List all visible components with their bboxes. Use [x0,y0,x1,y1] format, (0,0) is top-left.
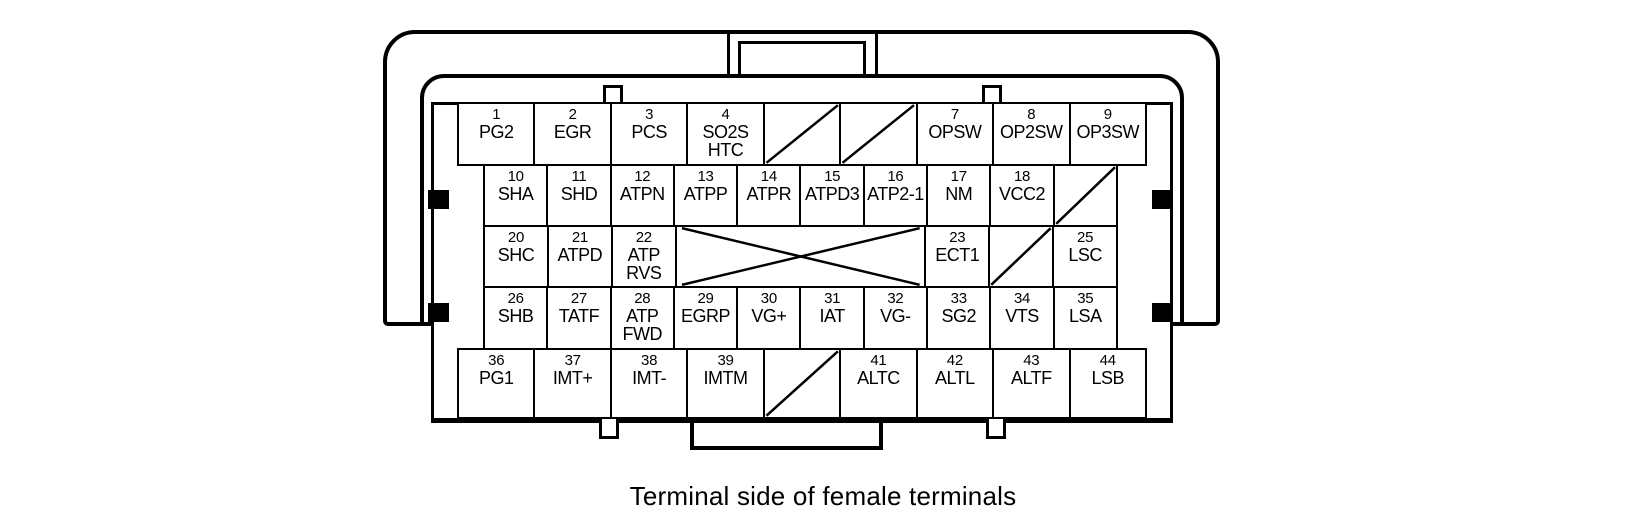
terminal-label-line2: HTC [708,141,744,159]
terminal-number: 39 [717,353,733,369]
terminal-cell-21: 21 ATPD [547,225,613,288]
terminal-label: SHB [498,307,534,325]
terminal-number: 17 [951,169,967,185]
terminal-number: 27 [571,291,587,307]
terminal-number: 9 [1104,107,1112,123]
terminal-number: 15 [824,169,840,185]
terminal-label: LSC [1068,246,1102,264]
diagram-caption: Terminal side of female terminals [593,481,1053,511]
terminal-cell-25: 25 LSC [1052,225,1118,288]
terminal-cell-7: 7 OPSW [916,102,994,166]
terminal-cell-4: 4 SO2S HTC [686,102,764,166]
unused-terminal-cell-24 [988,225,1054,288]
terminal-number: 3 [645,107,653,123]
terminal-number: 14 [761,169,777,185]
terminal-cell-18: 18 VCC2 [989,164,1054,227]
terminal-cell-13: 13 ATPP [673,164,738,227]
terminal-number: 33 [951,291,967,307]
terminal-label: SHC [498,246,535,264]
terminal-cell-41: 41 ALTC [839,348,917,419]
terminal-cell-38: 38 IMT- [610,348,688,419]
unused-terminal-cell-5 [763,102,841,166]
terminal-label: LSB [1091,369,1124,387]
terminal-number: 38 [641,353,657,369]
terminal-label: TATF [559,307,599,325]
terminal-label: VG+ [751,307,786,325]
terminal-cell-37: 37 IMT+ [533,348,611,419]
diagonal-slash-icon [765,104,839,164]
terminal-number: 12 [634,169,650,185]
terminal-number: 37 [565,353,581,369]
terminal-cell-17: 17 NM [926,164,991,227]
terminal-number: 26 [508,291,524,307]
terminal-number: 7 [951,107,959,123]
terminal-number: 4 [722,107,730,123]
terminal-number: 41 [870,353,886,369]
terminal-number: 42 [947,353,963,369]
terminal-row-1: 1 PG2 2 EGR 3 PCS 4 SO2S HTC 7 OPSW 8 OP… [457,102,1147,166]
terminal-label-line2: FWD [623,325,662,343]
unused-terminal-cell-19 [1053,164,1118,227]
diagonal-slash-icon [765,350,839,417]
terminal-cell-33: 33 SG2 [926,286,991,350]
terminal-label: ATPD [558,246,603,264]
terminal-label: ATP [628,246,660,264]
terminal-label: IMT- [632,369,666,387]
terminal-label: ATPR [747,185,792,203]
terminal-number: 10 [508,169,524,185]
terminal-label: ECT1 [935,246,979,264]
diagonal-slash-icon [990,227,1052,286]
terminal-cell-12: 12 ATPN [610,164,675,227]
terminal-label: IMT+ [553,369,593,387]
terminal-number: 8 [1027,107,1035,123]
terminal-number: 31 [824,291,840,307]
bottom-notch-left [599,417,619,439]
terminal-cell-20: 20 SHC [483,225,549,288]
terminal-label: OP2SW [1000,123,1063,141]
terminal-number: 13 [697,169,713,185]
terminal-row-5: 36 PG1 37 IMT+ 38 IMT- 39 IMTM 41 ALTC 4… [457,348,1147,419]
terminal-number: 28 [634,291,650,307]
terminal-cell-15: 15 ATPD3 [799,164,864,227]
terminal-number: 1 [492,107,500,123]
terminal-label: PCS [631,123,667,141]
terminal-cell-1: 1 PG2 [457,102,535,166]
terminal-label: PG2 [479,123,514,141]
terminal-cell-34: 34 VTS [989,286,1054,350]
terminal-label: ALTC [857,369,900,387]
terminal-label: ALTF [1011,369,1052,387]
terminal-label: IAT [820,307,845,325]
terminal-number: 30 [761,291,777,307]
cross-x-icon [677,227,925,286]
terminal-cell-39: 39 IMTM [686,348,764,419]
terminal-label: SHA [498,185,534,203]
terminal-cell-36: 36 PG1 [457,348,535,419]
terminal-cell-11: 11 SHD [546,164,611,227]
terminal-label: IMTM [704,369,748,387]
terminal-cell-44: 44 LSB [1069,348,1147,419]
terminal-cell-30: 30 VG+ [736,286,801,350]
terminal-label: ATP [626,307,658,325]
terminal-label: ATPD3 [805,185,859,203]
top-plug-tab-inner [738,41,866,78]
terminal-number: 23 [949,230,965,246]
unused-terminal-cell-40 [763,348,841,419]
terminal-label: OPSW [928,123,981,141]
terminal-number: 36 [488,353,504,369]
terminal-cell-3: 3 PCS [610,102,688,166]
terminal-cell-28: 28 ATP FWD [610,286,675,350]
terminal-number: 20 [508,230,524,246]
terminal-label: LSA [1069,307,1102,325]
terminal-label: PG1 [479,369,514,387]
terminal-cell-8: 8 OP2SW [992,102,1070,166]
terminal-label: VTS [1005,307,1039,325]
terminal-label: EGR [554,123,592,141]
terminal-cell-31: 31 IAT [799,286,864,350]
terminal-row-2: 10 SHA 11 SHD 12 ATPN 13 ATPP 14 ATPR 15… [483,164,1118,227]
terminal-number: 34 [1014,291,1030,307]
terminal-number: 22 [636,230,652,246]
terminal-cell-16: 16 ATP2-1 [863,164,928,227]
connector-pinout-diagram: 1 PG2 2 EGR 3 PCS 4 SO2S HTC 7 OPSW 8 OP… [0,0,1632,516]
terminal-label: SO2S [703,123,749,141]
terminal-label: ATP2-1 [867,185,924,203]
lock-tab-left-lower [428,303,449,322]
bottom-center-tab [690,421,883,450]
terminal-cell-35: 35 LSA [1053,286,1118,350]
terminal-number: 18 [1014,169,1030,185]
terminal-number: 11 [571,169,586,185]
terminal-label: OP3SW [1076,123,1139,141]
terminal-cell-2: 2 EGR [533,102,611,166]
terminal-cell-14: 14 ATPR [736,164,801,227]
terminal-label: VCC2 [999,185,1045,203]
lock-tab-right-lower [1152,303,1173,322]
terminal-label: ALTL [935,369,975,387]
terminal-cell-29: 29 EGRP [673,286,738,350]
bottom-notch-right [986,417,1006,439]
terminal-label: NM [945,185,972,203]
unused-terminal-block-cross [675,225,927,288]
terminal-label: SG2 [941,307,976,325]
terminal-row-3: 20 SHC 21 ATPD 22 ATP RVS 23 ECT1 25 LSC [483,225,1118,288]
terminal-label: EGRP [681,307,730,325]
terminal-label: ATPN [620,185,665,203]
terminal-cell-22: 22 ATP RVS [611,225,677,288]
diagonal-slash-icon [841,104,915,164]
terminal-label: VG- [880,307,911,325]
unused-terminal-cell-6 [839,102,917,166]
terminal-cell-27: 27 TATF [546,286,611,350]
terminal-cell-10: 10 SHA [483,164,548,227]
diagonal-slash-icon [1055,166,1116,225]
terminal-label: ATPP [684,185,728,203]
terminal-cell-23: 23 ECT1 [924,225,990,288]
terminal-number: 43 [1023,353,1039,369]
terminal-cell-26: 26 SHB [483,286,548,350]
lock-tab-right-upper [1152,190,1173,209]
terminal-cell-9: 9 OP3SW [1069,102,1147,166]
terminal-number: 21 [572,230,588,246]
terminal-number: 32 [887,291,903,307]
terminal-number: 44 [1100,353,1116,369]
terminal-number: 2 [569,107,577,123]
terminal-label-line2: RVS [626,264,661,282]
terminal-row-4: 26 SHB 27 TATF 28 ATP FWD 29 EGRP 30 VG+… [483,286,1118,350]
terminal-number: 35 [1077,291,1093,307]
terminal-cell-32: 32 VG- [863,286,928,350]
lock-tab-left-upper [428,190,449,209]
terminal-cell-43: 43 ALTF [992,348,1070,419]
terminal-label: SHD [561,185,598,203]
terminal-cell-42: 42 ALTL [916,348,994,419]
terminal-number: 16 [887,169,903,185]
terminal-number: 29 [697,291,713,307]
terminal-number: 25 [1077,230,1093,246]
